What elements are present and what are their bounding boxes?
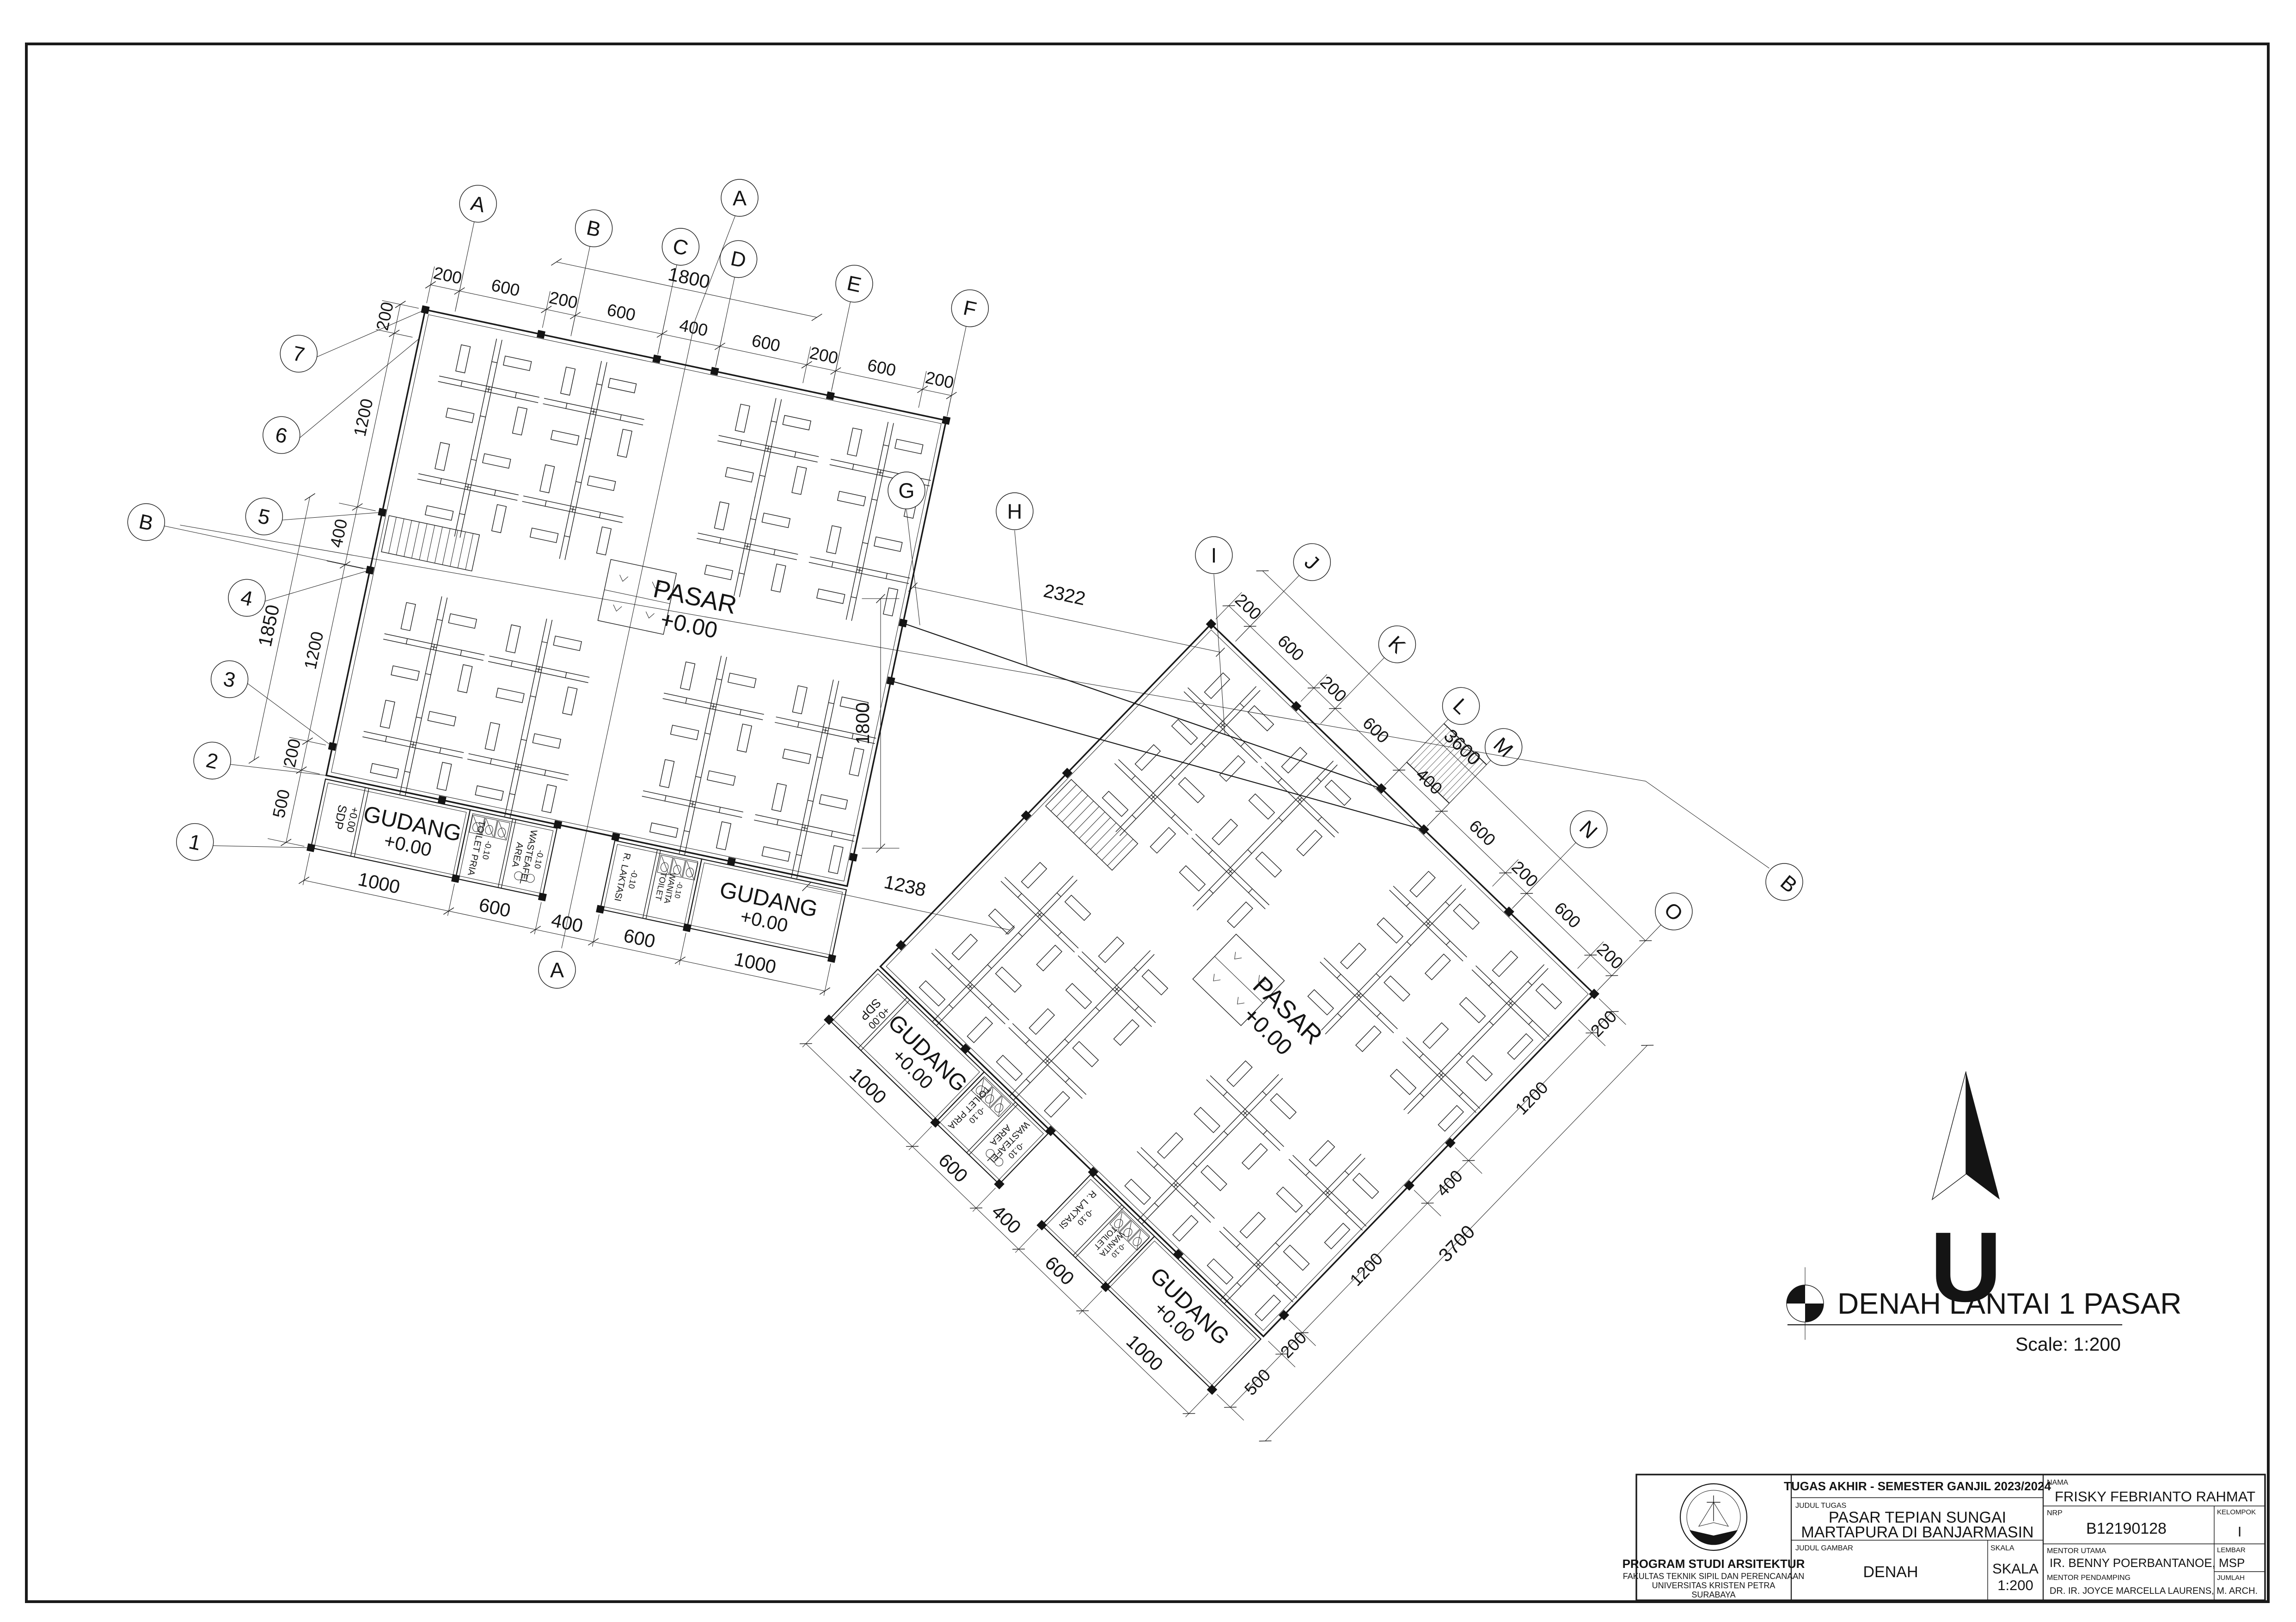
label-nama: NAMA bbox=[2047, 1479, 2069, 1487]
dim-label: 1200 bbox=[350, 397, 376, 438]
right-building: 200 600 200 600 400 600 200 600 200 3600… bbox=[800, 526, 1748, 1476]
right-dim-run-top: 200 600 200 600 400 600 200 600 200 bbox=[1213, 587, 1630, 992]
scale-word: SKALA bbox=[1992, 1561, 2039, 1577]
dim-label: 200 bbox=[280, 737, 304, 769]
dim-label: 600 bbox=[490, 275, 521, 300]
dim-label: 1238 bbox=[882, 871, 928, 900]
dim-label: 600 bbox=[1359, 713, 1393, 747]
dim-label: 400 bbox=[326, 517, 351, 549]
right-grid-bubbles-top: J K L M N O bbox=[1222, 536, 1700, 1004]
grid-bubble-label: G bbox=[898, 479, 914, 502]
scale-value: 1:200 bbox=[1997, 1577, 2033, 1593]
dim-label: 600 bbox=[1274, 631, 1308, 665]
grid-bubble-label: H bbox=[1007, 500, 1022, 523]
right-dim-side-overall: 3700 bbox=[1255, 1035, 1658, 1452]
institution-program: PROGRAM STUDI ARSITEKTUR bbox=[1623, 1557, 1805, 1571]
label-lembar: LEMBAR bbox=[2217, 1546, 2246, 1554]
value-kelompok: I bbox=[2238, 1524, 2242, 1540]
connector bbox=[891, 623, 1424, 830]
dim-label: 600 bbox=[606, 300, 637, 324]
value-mentor-pendamping: DR. IR. JOYCE MARCELLA LAURENS, M. ARCH. bbox=[2050, 1586, 2258, 1596]
university-logo bbox=[1680, 1484, 1747, 1550]
label-judul-gambar: JUDUL GAMBAR bbox=[1795, 1544, 1853, 1552]
value-nama: FRISKY FEBRIANTO RAHMAT bbox=[2055, 1488, 2255, 1505]
dim-label: 200 bbox=[1587, 1007, 1620, 1041]
dim-label: 600 bbox=[1465, 816, 1499, 850]
dim-label: 1800 bbox=[666, 263, 712, 293]
institution-faculty: FAKULTAS TEKNIK SIPIL DAN PERENCANAAN bbox=[1623, 1572, 1804, 1581]
dim-label: 600 bbox=[750, 331, 782, 355]
grid-bubble-label: I bbox=[1211, 544, 1217, 567]
dim-label: 500 bbox=[1241, 1365, 1274, 1399]
value-mentor-utama: IR. BENNY POERBANTANOE, MSP bbox=[2050, 1556, 2245, 1570]
project-title-2: MARTAPURA DI BANJARMASIN bbox=[1801, 1524, 2033, 1541]
label-mentor-utama: MENTOR UTAMA bbox=[2047, 1547, 2106, 1555]
label-kelompok: KELOMPOK bbox=[2217, 1508, 2256, 1516]
dim-label: 400 bbox=[1433, 1166, 1466, 1200]
institution-city: SURABAYA bbox=[1691, 1590, 1735, 1599]
dim-label: 200 bbox=[1316, 673, 1350, 706]
dim-label: 1200 bbox=[300, 630, 327, 671]
dim-label: 1200 bbox=[1512, 1078, 1552, 1119]
left-dim-run-side: 200 1200 400 1200 200 500 bbox=[263, 296, 419, 851]
label-skala: SKALA bbox=[1990, 1544, 2014, 1552]
dim-label: 1800 bbox=[852, 702, 873, 744]
dim-label: 200 bbox=[1593, 939, 1627, 973]
dim-label: 200 bbox=[1508, 857, 1542, 891]
dim-label: 600 bbox=[866, 355, 898, 380]
titleblock-header: TUGAS AKHIR - SEMESTER GANJIL 2023/2024 bbox=[1784, 1479, 2051, 1493]
dim-label: 200 bbox=[808, 343, 840, 367]
dim-label: 200 bbox=[432, 263, 464, 288]
label-jumlah: JUMLAH bbox=[2217, 1574, 2245, 1582]
drawing-title-scale: Scale: 1:200 bbox=[2015, 1334, 2121, 1355]
dim-label: 2322 bbox=[1042, 580, 1088, 609]
section-label: A bbox=[733, 186, 747, 210]
left-grid-bubbles-side: 7 6 5 4 3 2 1 bbox=[173, 282, 425, 884]
dim-label: 200 bbox=[1277, 1328, 1310, 1362]
value-nrp: B12190128 bbox=[2086, 1520, 2167, 1537]
left-building: 200 600 200 600 400 600 200 600 200 1800… bbox=[61, 128, 992, 999]
label-mentor-pendamping: MENTOR PENDAMPING bbox=[2047, 1574, 2131, 1582]
right-dim-top-overall: 3600 bbox=[1256, 551, 1664, 946]
dim-label: 600 bbox=[1550, 899, 1584, 932]
north-arrow: U bbox=[1930, 1071, 2002, 1322]
drawing-name: DENAH bbox=[1863, 1563, 1918, 1581]
dim-label: 500 bbox=[269, 788, 294, 820]
dim-label: 200 bbox=[924, 368, 955, 392]
dim-label: 200 bbox=[547, 288, 579, 312]
drawing-title-text: DENAH LANTAI 1 PASAR bbox=[1837, 1287, 2182, 1320]
left-grid-bubbles-top: A B C D E F bbox=[437, 182, 992, 420]
floorplan-sheet: PASAR +0.00 SDP +0.00 GUDANG +0.00 TOILE… bbox=[0, 0, 2296, 1622]
dim-label: 200 bbox=[1231, 590, 1265, 624]
dim-label: 3600 bbox=[1440, 725, 1485, 769]
dim-label: 1200 bbox=[1347, 1249, 1387, 1290]
right-building-hall bbox=[800, 618, 1600, 1420]
title-block: PROGRAM STUDI ARSITEKTUR FAKULTAS TEKNIK… bbox=[1623, 1475, 2265, 1600]
institution-university: UNIVERSITAS KRISTEN PETRA bbox=[1652, 1581, 1776, 1590]
connector-dims: 2322 1800 1238 bbox=[802, 580, 1225, 934]
section-label: A bbox=[550, 958, 564, 982]
label-nrp: NRP bbox=[2047, 1509, 2063, 1517]
